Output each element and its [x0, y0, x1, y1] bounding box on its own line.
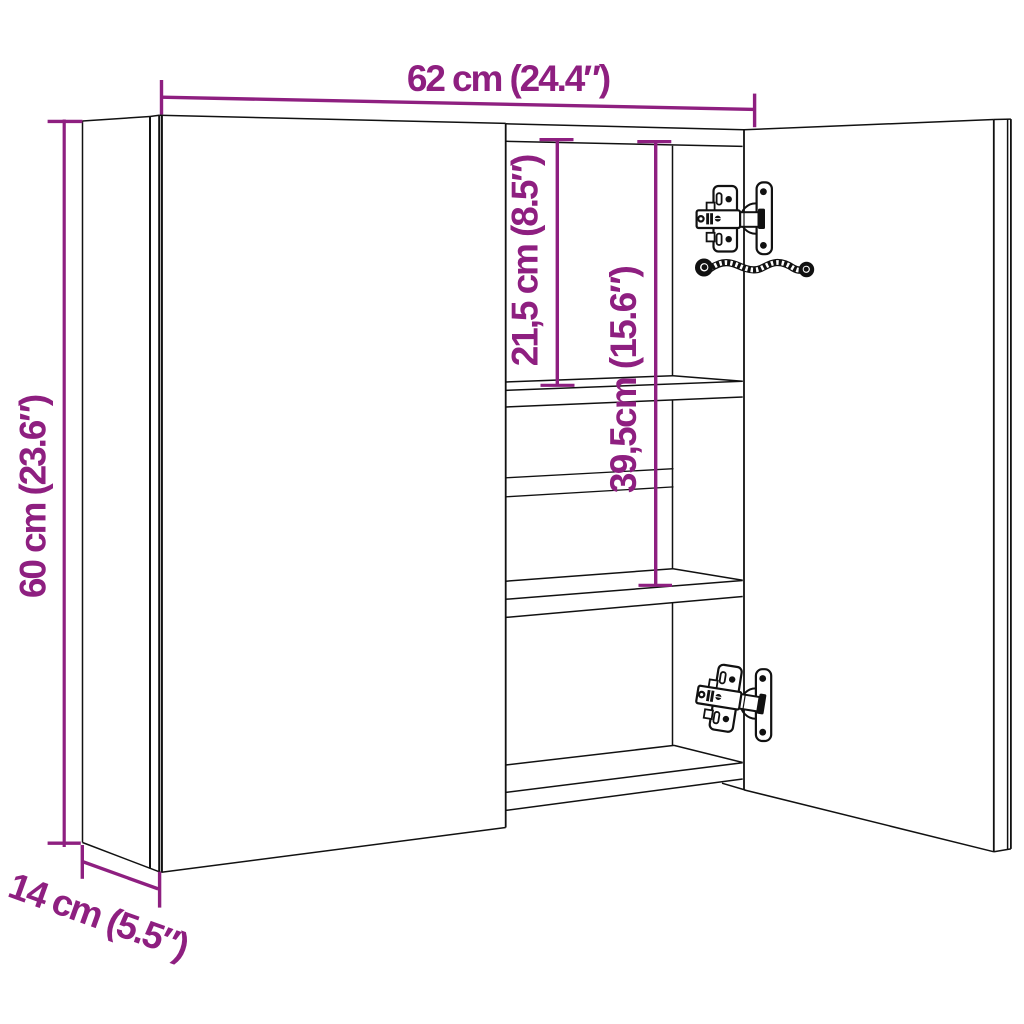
svg-text:62 cm (24.4″): 62 cm (24.4″): [407, 58, 610, 99]
svg-text:21,5 cm (8.5″): 21,5 cm (8.5″): [505, 155, 546, 366]
svg-text:60 cm (23.6″): 60 cm (23.6″): [13, 395, 54, 598]
svg-text:39,5cm (15.6″): 39,5cm (15.6″): [603, 266, 644, 493]
